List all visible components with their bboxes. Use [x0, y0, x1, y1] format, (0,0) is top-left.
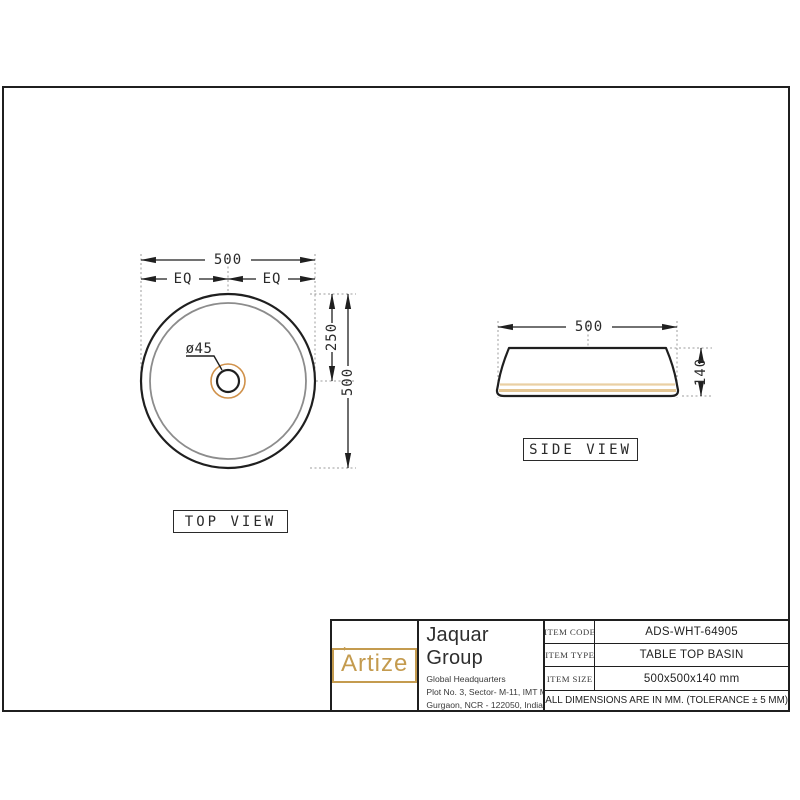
side-width-dim-text: 500: [575, 319, 603, 335]
half-dim-text: 250: [324, 323, 340, 351]
logo-accent-mark: ʼ: [343, 646, 347, 663]
item-type-value: TABLE TOP BASIN: [595, 644, 788, 666]
side-view-label: SIDE VIEW: [529, 442, 632, 458]
table-row: ITEM SIZE 500x500x140 mm: [545, 667, 788, 691]
address-line-3: Gurgaon, NCR - 122050, India: [426, 699, 537, 710]
logo-text: Artize: [341, 650, 408, 677]
drain-hole-circle: [217, 370, 239, 392]
address-line-2: Plot No. 3, Sector- M-11, IMT Manesar: [426, 686, 537, 699]
item-size-label: ITEM SIZE: [545, 667, 595, 690]
address-line-1: Global Headquarters: [426, 673, 537, 686]
top-view-width-dim-text: 500: [214, 252, 242, 268]
artize-logo: ʼArtize: [332, 648, 417, 682]
item-table: ITEM CODE ADS-WHT-64905 ITEM TYPE TABLE …: [545, 621, 788, 710]
item-code-label: ITEM CODE: [545, 621, 595, 643]
item-size-value: 500x500x140 mm: [595, 667, 788, 690]
company-name: Jaquar Group: [426, 624, 537, 670]
title-block: ʼArtize Jaquar Group Global Headquarters…: [330, 619, 790, 712]
company-cell: Jaquar Group Global Headquarters Plot No…: [419, 621, 545, 710]
top-view-label-box: TOP VIEW: [173, 510, 288, 533]
eq-left-dim-text: EQ: [174, 271, 193, 287]
item-code-value: ADS-WHT-64905: [595, 621, 788, 643]
table-row: ITEM TYPE TABLE TOP BASIN: [545, 644, 788, 667]
logo-cell: ʼArtize: [332, 621, 419, 710]
top-view: 500 EQ EQ 250 500 ø45: [141, 252, 356, 468]
basin-profile-outline: [497, 348, 678, 396]
side-view: 500 140: [497, 319, 712, 398]
item-type-label: ITEM TYPE: [545, 644, 595, 666]
table-row: ITEM CODE ADS-WHT-64905: [545, 621, 788, 644]
tolerance-note: ALL DIMENSIONS ARE IN MM. (TOLERANCE ± 5…: [545, 691, 788, 710]
drain-dim-text: ø45: [186, 341, 213, 357]
top-view-label: TOP VIEW: [185, 514, 276, 530]
side-view-label-box: SIDE VIEW: [523, 438, 638, 461]
side-height-dim-text: 140: [693, 358, 709, 386]
eq-right-dim-text: EQ: [263, 271, 282, 287]
height-dim-text: 500: [340, 368, 356, 396]
